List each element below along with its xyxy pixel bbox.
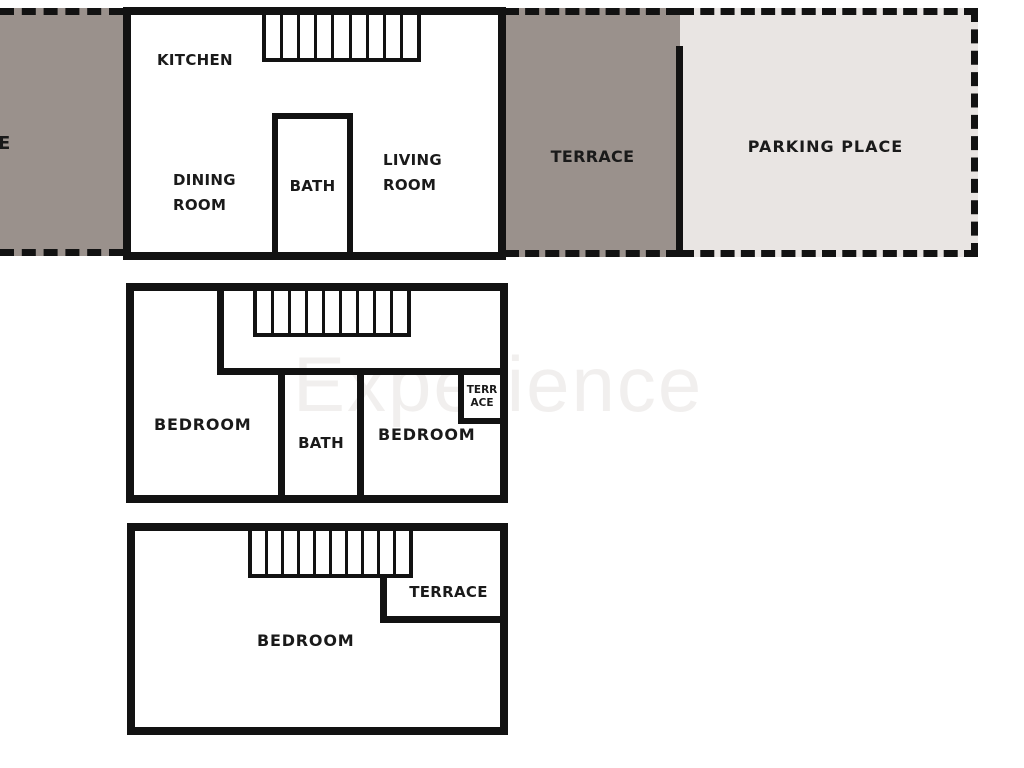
terrace-label: TERRACE bbox=[505, 147, 680, 166]
parking-area: PARKING PLACE bbox=[680, 8, 978, 257]
left-terrace-strip: E bbox=[0, 8, 123, 256]
living-room-label: LIVING ROOM bbox=[383, 148, 465, 198]
floor-plan-bottom: TERRACE BEDROOM bbox=[127, 523, 508, 735]
interior-wall bbox=[217, 368, 500, 375]
bedroom-right-label: BEDROOM bbox=[378, 425, 475, 444]
small-terrace-label-line1: TERR bbox=[467, 384, 498, 397]
terrace-wall-horizontal bbox=[380, 616, 500, 623]
bath-room: BATH bbox=[272, 113, 353, 252]
small-terrace-room: TERR ACE bbox=[458, 375, 500, 424]
floor-plan-page: Experience E TERRACE PARKING PLACE KITCH… bbox=[0, 0, 1024, 768]
terrace-area: TERRACE bbox=[505, 8, 680, 257]
small-terrace-label-line2: ACE bbox=[470, 397, 493, 410]
dining-room-label: DINING ROOM bbox=[173, 168, 261, 218]
terrace-label: TERRACE bbox=[397, 583, 500, 601]
bath-label: BATH bbox=[290, 177, 336, 195]
floor-plan-middle: TERR ACE BEDROOM BATH BEDROOM bbox=[126, 283, 508, 503]
left-strip-cut-label: E bbox=[0, 133, 11, 155]
interior-wall bbox=[217, 291, 224, 375]
stairs-icon bbox=[262, 15, 421, 62]
bath-wall-left bbox=[278, 375, 285, 495]
kitchen-label: KITCHEN bbox=[157, 51, 233, 69]
bedroom-label: BEDROOM bbox=[257, 631, 354, 650]
bath-wall-right bbox=[357, 375, 364, 495]
stairs-icon bbox=[253, 291, 411, 337]
parking-label: PARKING PLACE bbox=[680, 137, 971, 156]
terrace-parking-divider-wall bbox=[676, 46, 683, 257]
bath-label: BATH bbox=[285, 434, 357, 452]
bedroom-left-label: BEDROOM bbox=[154, 415, 251, 434]
floor-plan-top: KITCHEN BATH DINING ROOM LIVING ROOM bbox=[123, 7, 506, 260]
stairs-icon bbox=[248, 531, 413, 578]
